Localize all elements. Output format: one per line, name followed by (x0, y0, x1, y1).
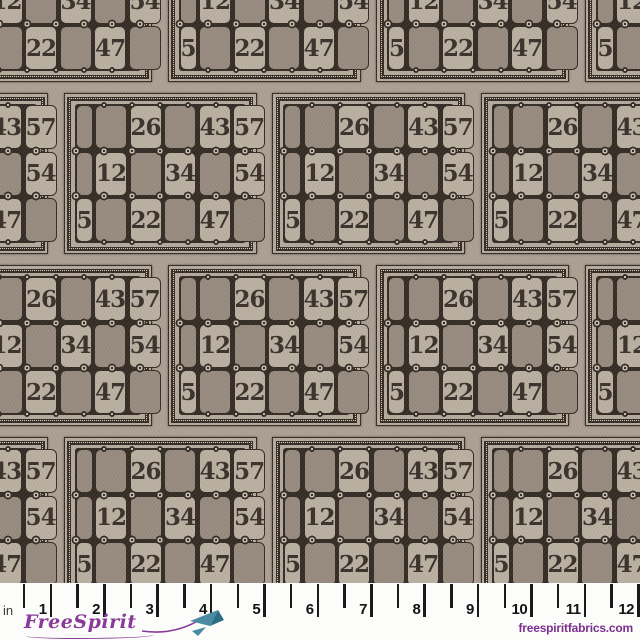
card-cell-blank (129, 26, 161, 70)
card-cell-number: 54 (129, 324, 161, 368)
card-cell-number: 43 (199, 449, 231, 493)
grid-bead (620, 318, 629, 327)
card-cell-blank (268, 277, 300, 321)
grid-bead (107, 364, 116, 373)
card-cell-number: 57 (25, 105, 57, 149)
ruler-tick-inch (637, 584, 640, 617)
card-cell-number: 26 (338, 105, 370, 149)
card-cell-number: 26 (25, 277, 57, 321)
grid-bead (630, 102, 636, 108)
card-cell-blank (234, 324, 266, 368)
grid-bead (337, 446, 343, 452)
grid-bead (71, 192, 80, 201)
grid-bead (524, 318, 533, 327)
card-cell-number: 34 (164, 152, 196, 196)
card-cell-blank (25, 542, 57, 583)
grid-bead (602, 239, 608, 245)
grid-bead (23, 364, 32, 373)
grid-bead (449, 490, 458, 499)
grid-bead (175, 20, 184, 29)
card-grid: 26435712345452247 (492, 448, 640, 583)
grid-bead (468, 364, 477, 373)
card-cell-number: 43 (616, 105, 640, 149)
card-cell-blank (284, 496, 301, 540)
grid-bead (592, 364, 601, 373)
grid-bead (5, 102, 11, 108)
grid-bead (412, 20, 421, 29)
grid-bead (544, 536, 553, 545)
grid-bead (420, 536, 429, 545)
card-cell-blank (388, 324, 405, 368)
grid-bead (81, 67, 87, 73)
card-cell-number: 54 (337, 324, 369, 368)
card-cell-blank (581, 105, 613, 149)
grid-bead (573, 192, 582, 201)
grid-bead (24, 274, 30, 280)
grid-bead (620, 364, 629, 373)
card-cell-blank (164, 105, 196, 149)
card-cell-blank (616, 277, 640, 321)
fabric-swatch-image: 2643571234545224726435712345452247264357… (0, 0, 640, 640)
card-cell-blank (199, 277, 231, 321)
grid-bead (546, 102, 552, 108)
ruler-tick-inch (317, 584, 320, 617)
grid-bead (364, 192, 373, 201)
card-cell-blank (493, 496, 510, 540)
card-cell-number: 12 (616, 0, 640, 24)
grid-bead (392, 192, 401, 201)
paper-plane-icon (142, 605, 228, 639)
card-cell-blank (512, 449, 544, 493)
card-cell-blank (547, 496, 579, 540)
card-cell-number: 43 (616, 449, 640, 493)
card-grid: 26435712345452247 (387, 276, 558, 415)
grid-bead (203, 364, 212, 373)
card-cell-number: 22 (338, 542, 370, 583)
grid-bead (203, 20, 212, 29)
card-cell-blank (76, 449, 93, 493)
grid-bead (156, 536, 165, 545)
lotto-card: 26435712345452247 (585, 265, 640, 426)
grid-bead (573, 146, 582, 155)
card-cell-blank (303, 324, 335, 368)
grid-bead (553, 318, 562, 327)
grid-bead (107, 318, 116, 327)
card-cell-number: 54 (233, 152, 265, 196)
grid-bead (364, 536, 373, 545)
card-cell-blank (76, 496, 93, 540)
grid-bead (592, 318, 601, 327)
card-cell-number: 22 (442, 26, 474, 70)
card-grid: 26435712345452247 (387, 0, 558, 71)
card-grid: 26435712345452247 (0, 0, 141, 71)
card-cell-blank (512, 542, 544, 583)
card-cell-number: 57 (233, 449, 265, 493)
grid-bead (71, 536, 80, 545)
card-cell-number: 22 (25, 26, 57, 70)
card-grid: 26435712345452247 (0, 104, 37, 243)
grid-bead (412, 364, 421, 373)
ruler-inch-number: 8 (392, 601, 420, 618)
card-cell-blank (337, 26, 369, 70)
card-cell-blank (493, 449, 510, 493)
grid-bead (185, 446, 191, 452)
grid-bead (394, 446, 400, 452)
card-cell-number: 5 (388, 370, 405, 414)
grid-bead (516, 192, 525, 201)
card-cell-blank (180, 277, 197, 321)
grid-bead (384, 20, 393, 29)
card-cell-number: 47 (616, 198, 640, 242)
card-cell-blank (493, 152, 510, 196)
grid-bead (574, 446, 580, 452)
card-cell-number: 12 (304, 496, 336, 540)
grid-bead (412, 318, 421, 327)
card-cell-number: 5 (76, 542, 93, 583)
card-cell-number: 43 (303, 277, 335, 321)
grid-bead (488, 536, 497, 545)
grid-bead (3, 146, 12, 155)
grid-bead (213, 239, 219, 245)
card-cell-blank (442, 198, 474, 242)
card-grid: 26435712345452247 (75, 104, 246, 243)
grid-bead (488, 146, 497, 155)
grid-bead (289, 274, 295, 280)
ruler: 123456789101112 in FreeSpirit freespirit… (0, 583, 640, 640)
ruler-inch-number: 6 (286, 601, 314, 618)
grid-bead (79, 20, 88, 29)
grid-bead (336, 536, 345, 545)
grid-bead (99, 536, 108, 545)
grid-bead (601, 192, 610, 201)
card-cell-number: 12 (199, 324, 231, 368)
card-cell-number: 12 (408, 324, 440, 368)
grid-bead (288, 20, 297, 29)
grid-bead (316, 318, 325, 327)
card-cell-blank (512, 105, 544, 149)
card-cell-number: 12 (512, 496, 544, 540)
grid-bead (316, 364, 325, 373)
card-cell-number: 34 (60, 0, 92, 24)
card-cell-number: 26 (234, 277, 266, 321)
grid-bead (53, 67, 59, 73)
card-cell-number: 22 (25, 370, 57, 414)
card-cell-number: 54 (546, 0, 578, 24)
card-cell-number: 26 (338, 449, 370, 493)
grid-bead (101, 446, 107, 452)
grid-bead (5, 446, 11, 452)
grid-bead (630, 239, 636, 245)
card-cell-blank (304, 198, 336, 242)
card-cell-blank (25, 324, 57, 368)
grid-bead (470, 67, 476, 73)
card-cell-number: 47 (511, 26, 543, 70)
ruler-tick-inch (584, 584, 587, 617)
grid-bead (24, 411, 30, 417)
card-grid: 26435712345452247 (0, 448, 37, 583)
grid-bead (203, 318, 212, 327)
card-cell-blank (408, 277, 440, 321)
grid-bead (440, 318, 449, 327)
card-cell-number: 34 (581, 496, 613, 540)
card-cell-number: 5 (284, 542, 301, 583)
grid-bead (53, 411, 59, 417)
ruler-inch-number: 12 (606, 601, 634, 618)
grid-bead (3, 192, 12, 201)
card-grid: 26435712345452247 (179, 276, 350, 415)
card-cell-blank (597, 324, 614, 368)
card-cell-blank (25, 198, 57, 242)
grid-bead (441, 67, 447, 73)
grid-bead (288, 318, 297, 327)
card-cell-number: 54 (25, 152, 57, 196)
card-cell-blank (0, 277, 23, 321)
card-cell-blank (337, 370, 369, 414)
card-cell-number: 34 (477, 0, 509, 24)
card-cell-blank (373, 449, 405, 493)
card-cell-blank (199, 496, 231, 540)
grid-bead (422, 102, 428, 108)
card-cell-blank (493, 105, 510, 149)
grid-bead (205, 411, 211, 417)
card-cell-number: 5 (493, 542, 510, 583)
card-cell-blank (0, 496, 22, 540)
grid-bead (524, 20, 533, 29)
grid-bead (184, 146, 193, 155)
grid-bead (101, 239, 107, 245)
card-cell-number: 5 (76, 198, 93, 242)
card-cell-blank (597, 277, 614, 321)
freespirit-logo-text: FreeSpirit (24, 611, 137, 633)
card-cell-number: 34 (373, 152, 405, 196)
card-cell-number: 47 (0, 198, 22, 242)
grid-bead (213, 446, 219, 452)
card-cell-blank (546, 370, 578, 414)
ruler-inch-number: 11 (553, 601, 581, 618)
grid-bead (212, 146, 221, 155)
grid-bead (308, 146, 317, 155)
card-cell-number: 26 (547, 105, 579, 149)
card-cell-number: 54 (442, 152, 474, 196)
card-cell-number: 54 (337, 0, 369, 24)
card-cell-number: 43 (407, 105, 439, 149)
card-cell-number: 34 (268, 324, 300, 368)
grid-bead (496, 318, 505, 327)
grid-bead (629, 192, 638, 201)
card-cell-blank (616, 496, 640, 540)
card-cell-number: 57 (25, 449, 57, 493)
card-grid: 26435712345452247 (596, 276, 640, 415)
card-cell-number: 12 (0, 324, 23, 368)
card-cell-blank (199, 26, 231, 70)
grid-bead (81, 274, 87, 280)
grid-bead (629, 146, 638, 155)
grid-bead (79, 364, 88, 373)
grid-bead (413, 274, 419, 280)
card-cell-blank (95, 449, 127, 493)
card-cell-blank (477, 370, 509, 414)
grid-bead (317, 67, 323, 73)
grid-bead (32, 490, 41, 499)
ruler-tick-inch (477, 584, 480, 617)
grid-bead (233, 274, 239, 280)
card-grid: 26435712345452247 (283, 448, 454, 583)
grid-bead (468, 318, 477, 327)
grid-bead (129, 446, 135, 452)
grid-bead (280, 192, 289, 201)
grid-bead (51, 364, 60, 373)
card-cell-blank (546, 26, 578, 70)
grid-bead (231, 318, 240, 327)
card-cell-number: 5 (493, 198, 510, 242)
card-cell-number: 5 (388, 26, 405, 70)
grid-bead (5, 239, 11, 245)
grid-bead (51, 20, 60, 29)
card-cell-number: 34 (581, 152, 613, 196)
card-cell-number: 22 (442, 370, 474, 414)
grid-bead (157, 446, 163, 452)
grid-bead (184, 536, 193, 545)
grid-bead (384, 318, 393, 327)
grid-bead (212, 192, 221, 201)
card-cell-number: 47 (303, 370, 335, 414)
card-cell-blank (408, 26, 440, 70)
grid-bead (573, 536, 582, 545)
grid-bead (518, 239, 524, 245)
card-cell-blank (0, 26, 23, 70)
grid-bead (496, 20, 505, 29)
grid-bead (592, 20, 601, 29)
card-grid: 26435712345452247 (596, 0, 640, 71)
card-cell-blank (581, 198, 613, 242)
grid-bead (394, 239, 400, 245)
grid-bead (184, 490, 193, 499)
card-cell-blank (95, 198, 127, 242)
grid-bead (240, 192, 249, 201)
grid-bead (524, 364, 533, 373)
card-cell-number: 47 (94, 370, 126, 414)
card-cell-blank (233, 198, 265, 242)
grid-bead (392, 146, 401, 155)
card-cell-number: 12 (616, 324, 640, 368)
grid-bead (544, 146, 553, 155)
card-cell-blank (407, 152, 439, 196)
grid-bead (629, 536, 638, 545)
grid-bead (630, 446, 636, 452)
grid-bead (129, 239, 135, 245)
card-cell-number: 43 (511, 277, 543, 321)
card-cell-blank (373, 105, 405, 149)
card-cell-blank (94, 324, 126, 368)
grid-bead (205, 67, 211, 73)
grid-bead (496, 364, 505, 373)
grid-bead (317, 411, 323, 417)
lotto-card: 26435712345452247 (168, 0, 361, 82)
grid-bead (344, 364, 353, 373)
card-cell-number: 43 (94, 277, 126, 321)
card-cell-blank (388, 277, 405, 321)
card-cell-number: 47 (303, 26, 335, 70)
grid-bead (441, 274, 447, 280)
grid-bead (449, 192, 458, 201)
card-cell-blank (407, 496, 439, 540)
card-cell-number: 47 (199, 542, 231, 583)
grid-bead (23, 20, 32, 29)
grid-bead (574, 239, 580, 245)
card-cell-blank (199, 370, 231, 414)
grid-bead (99, 490, 108, 499)
logo-swash-underline (26, 632, 154, 639)
grid-bead (344, 318, 353, 327)
grid-bead (392, 536, 401, 545)
lotto-card: 26435712345452247 (0, 0, 152, 82)
grid-bead (136, 318, 145, 327)
grid-bead (32, 192, 41, 201)
ruler-unit-label: in (3, 603, 13, 618)
card-cell-blank (60, 26, 92, 70)
grid-bead (364, 146, 373, 155)
grid-bead (601, 536, 610, 545)
grid-bead (526, 274, 532, 280)
lotto-card: 26435712345452247 (0, 437, 48, 583)
grid-bead (468, 20, 477, 29)
grid-bead (261, 274, 267, 280)
grid-bead (289, 411, 295, 417)
grid-bead (71, 490, 80, 499)
card-cell-number: 26 (442, 277, 474, 321)
grid-bead (470, 274, 476, 280)
card-cell-number: 57 (337, 277, 369, 321)
grid-bead (488, 490, 497, 499)
ruler-inch-number: 9 (446, 601, 474, 618)
grid-bead (309, 102, 315, 108)
card-cell-number: 47 (407, 542, 439, 583)
card-cell-blank (233, 542, 265, 583)
grid-bead (308, 490, 317, 499)
grid-bead (280, 536, 289, 545)
card-cell-number: 5 (597, 370, 614, 414)
card-cell-blank (616, 26, 640, 70)
ruler-tick-inch (423, 584, 426, 617)
grid-bead (240, 536, 249, 545)
grid-bead (109, 411, 115, 417)
grid-bead (212, 536, 221, 545)
grid-bead (233, 67, 239, 73)
card-cell-number: 26 (547, 449, 579, 493)
card-cell-number: 34 (477, 324, 509, 368)
card-cell-blank (180, 324, 197, 368)
card-cell-number: 12 (304, 152, 336, 196)
lotto-card: 26435712345452247 (376, 0, 569, 82)
grid-bead (364, 490, 373, 499)
lotto-card: 26435712345452247 (481, 93, 640, 254)
grid-bead (366, 102, 372, 108)
grid-bead (175, 318, 184, 327)
grid-bead (205, 274, 211, 280)
lotto-card: 26435712345452247 (272, 93, 465, 254)
card-cell-number: 22 (234, 26, 266, 70)
grid-bead (32, 536, 41, 545)
grid-bead (344, 20, 353, 29)
grid-bead (240, 490, 249, 499)
grid-bead (516, 146, 525, 155)
card-cell-blank (511, 324, 543, 368)
grid-bead (449, 146, 458, 155)
grid-bead (157, 102, 163, 108)
grid-bead (261, 411, 267, 417)
card-cell-blank (338, 152, 370, 196)
lotto-card: 26435712345452247 (376, 265, 569, 426)
